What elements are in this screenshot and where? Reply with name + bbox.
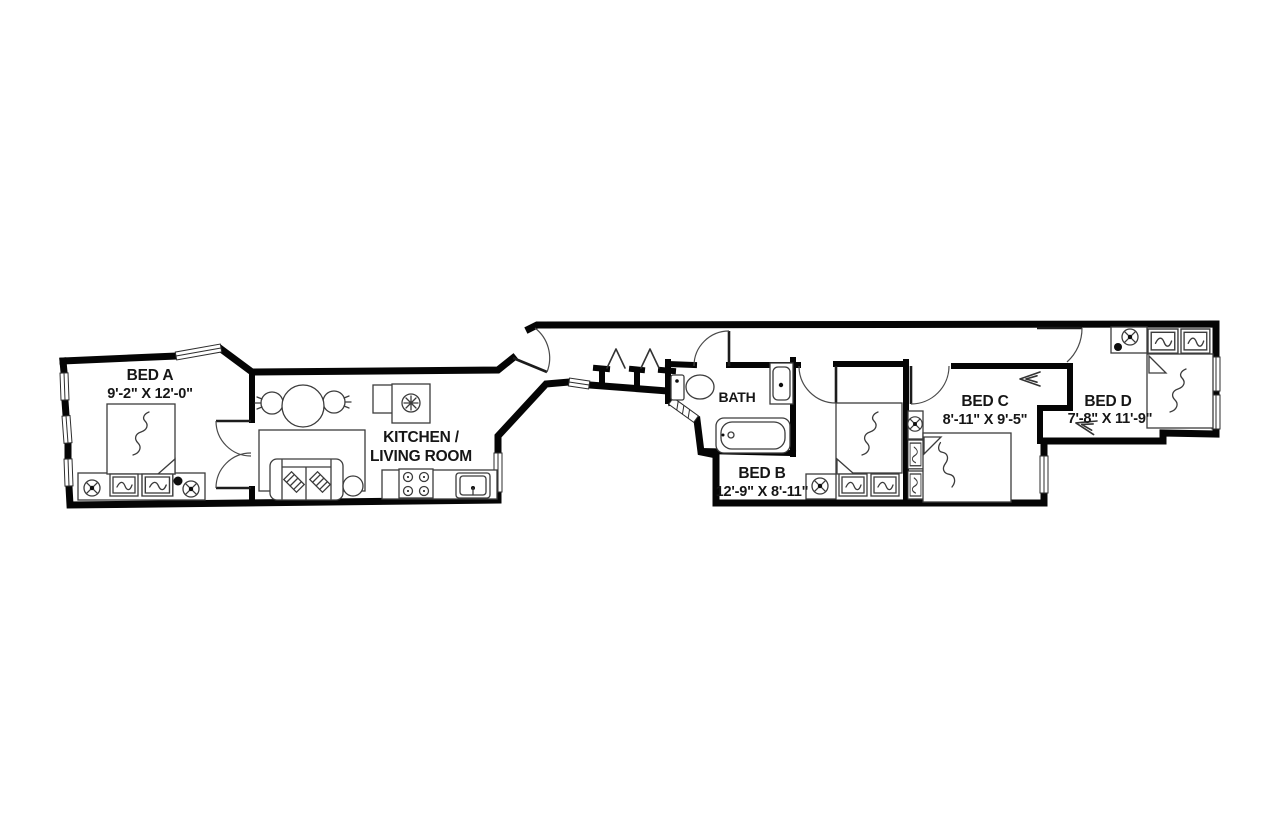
window: [175, 344, 221, 360]
nightstand: [1148, 329, 1178, 353]
window: [568, 378, 589, 389]
toilet: [671, 375, 714, 400]
ceiling-light-icon: [1122, 329, 1138, 345]
bath-door: [694, 331, 729, 366]
side-table: [343, 476, 363, 496]
window: [1040, 456, 1048, 493]
ceiling-light-icon: [812, 478, 828, 494]
floor-plan-page: BED A 9'-2" X 12'-0" KITCHEN / LIVING RO…: [0, 0, 1280, 828]
bathtub: [716, 418, 790, 453]
bed-a-furniture: [78, 404, 205, 500]
window: [60, 373, 69, 400]
bed-a-bed: [107, 404, 175, 474]
bath-fixtures: [671, 363, 793, 453]
bed-c-bed: [923, 433, 1011, 502]
bed-c-furniture: [908, 372, 1040, 502]
dining-table: [282, 385, 324, 427]
nightstand: [110, 474, 138, 496]
closet-bifold-doors: [607, 349, 659, 368]
nightstand: [908, 440, 923, 469]
room-label-bed-b: BED B: [738, 465, 785, 482]
room-dims-bed-c: 8'-11" X 9'-5": [943, 412, 1028, 428]
detector-dot-icon: [1114, 343, 1122, 351]
entry-door: [513, 328, 550, 372]
dining-chair: [255, 392, 283, 414]
nightstand: [839, 474, 867, 496]
nightstand: [871, 474, 899, 496]
nightstand: [908, 471, 923, 499]
window: [64, 459, 73, 486]
ceiling-light-icon: [183, 481, 199, 497]
bath-vanity-sink: [770, 363, 793, 404]
bed-b-door: [799, 366, 836, 403]
floor-plan-svg: BED A 9'-2" X 12'-0" KITCHEN / LIVING RO…: [0, 0, 1280, 828]
detector-dot-icon: [174, 477, 183, 486]
bed-c-door: [911, 366, 949, 404]
nightstand: [1181, 329, 1210, 353]
room-label-bath: BATH: [718, 389, 755, 405]
bed-b-bed: [836, 403, 902, 473]
bed-a-double-door: [216, 421, 251, 488]
room-dims-bed-b: 12'-9" X 8'-11": [716, 484, 809, 500]
room-dims-bed-d: 7'-8" X 11'-9": [1068, 411, 1153, 427]
window: [62, 416, 72, 444]
bed-b-furniture: [806, 403, 902, 499]
room-label-kitchen-line2: LIVING ROOM: [370, 448, 472, 465]
room-label-bed-d: BED D: [1084, 393, 1131, 410]
room-dims-bed-a: 9'-2" X 12'-0": [107, 386, 193, 402]
window: [669, 398, 699, 423]
kitchen-sink: [456, 473, 490, 498]
kitchen-counter: [373, 385, 393, 413]
kitchen-living-furniture: [255, 384, 497, 500]
stove: [399, 469, 433, 498]
chevron-mark-icon: [1020, 372, 1040, 386]
room-label-kitchen-line1: KITCHEN /: [383, 429, 460, 446]
nightstand: [142, 474, 173, 496]
room-label-bed-c: BED C: [961, 393, 1008, 410]
bed-d-door: [1037, 328, 1082, 362]
room-label-bed-a: BED A: [127, 367, 174, 384]
dining-chair: [323, 391, 351, 413]
ceiling-light-icon: [84, 480, 100, 496]
ceiling-light-icon: [908, 417, 922, 431]
